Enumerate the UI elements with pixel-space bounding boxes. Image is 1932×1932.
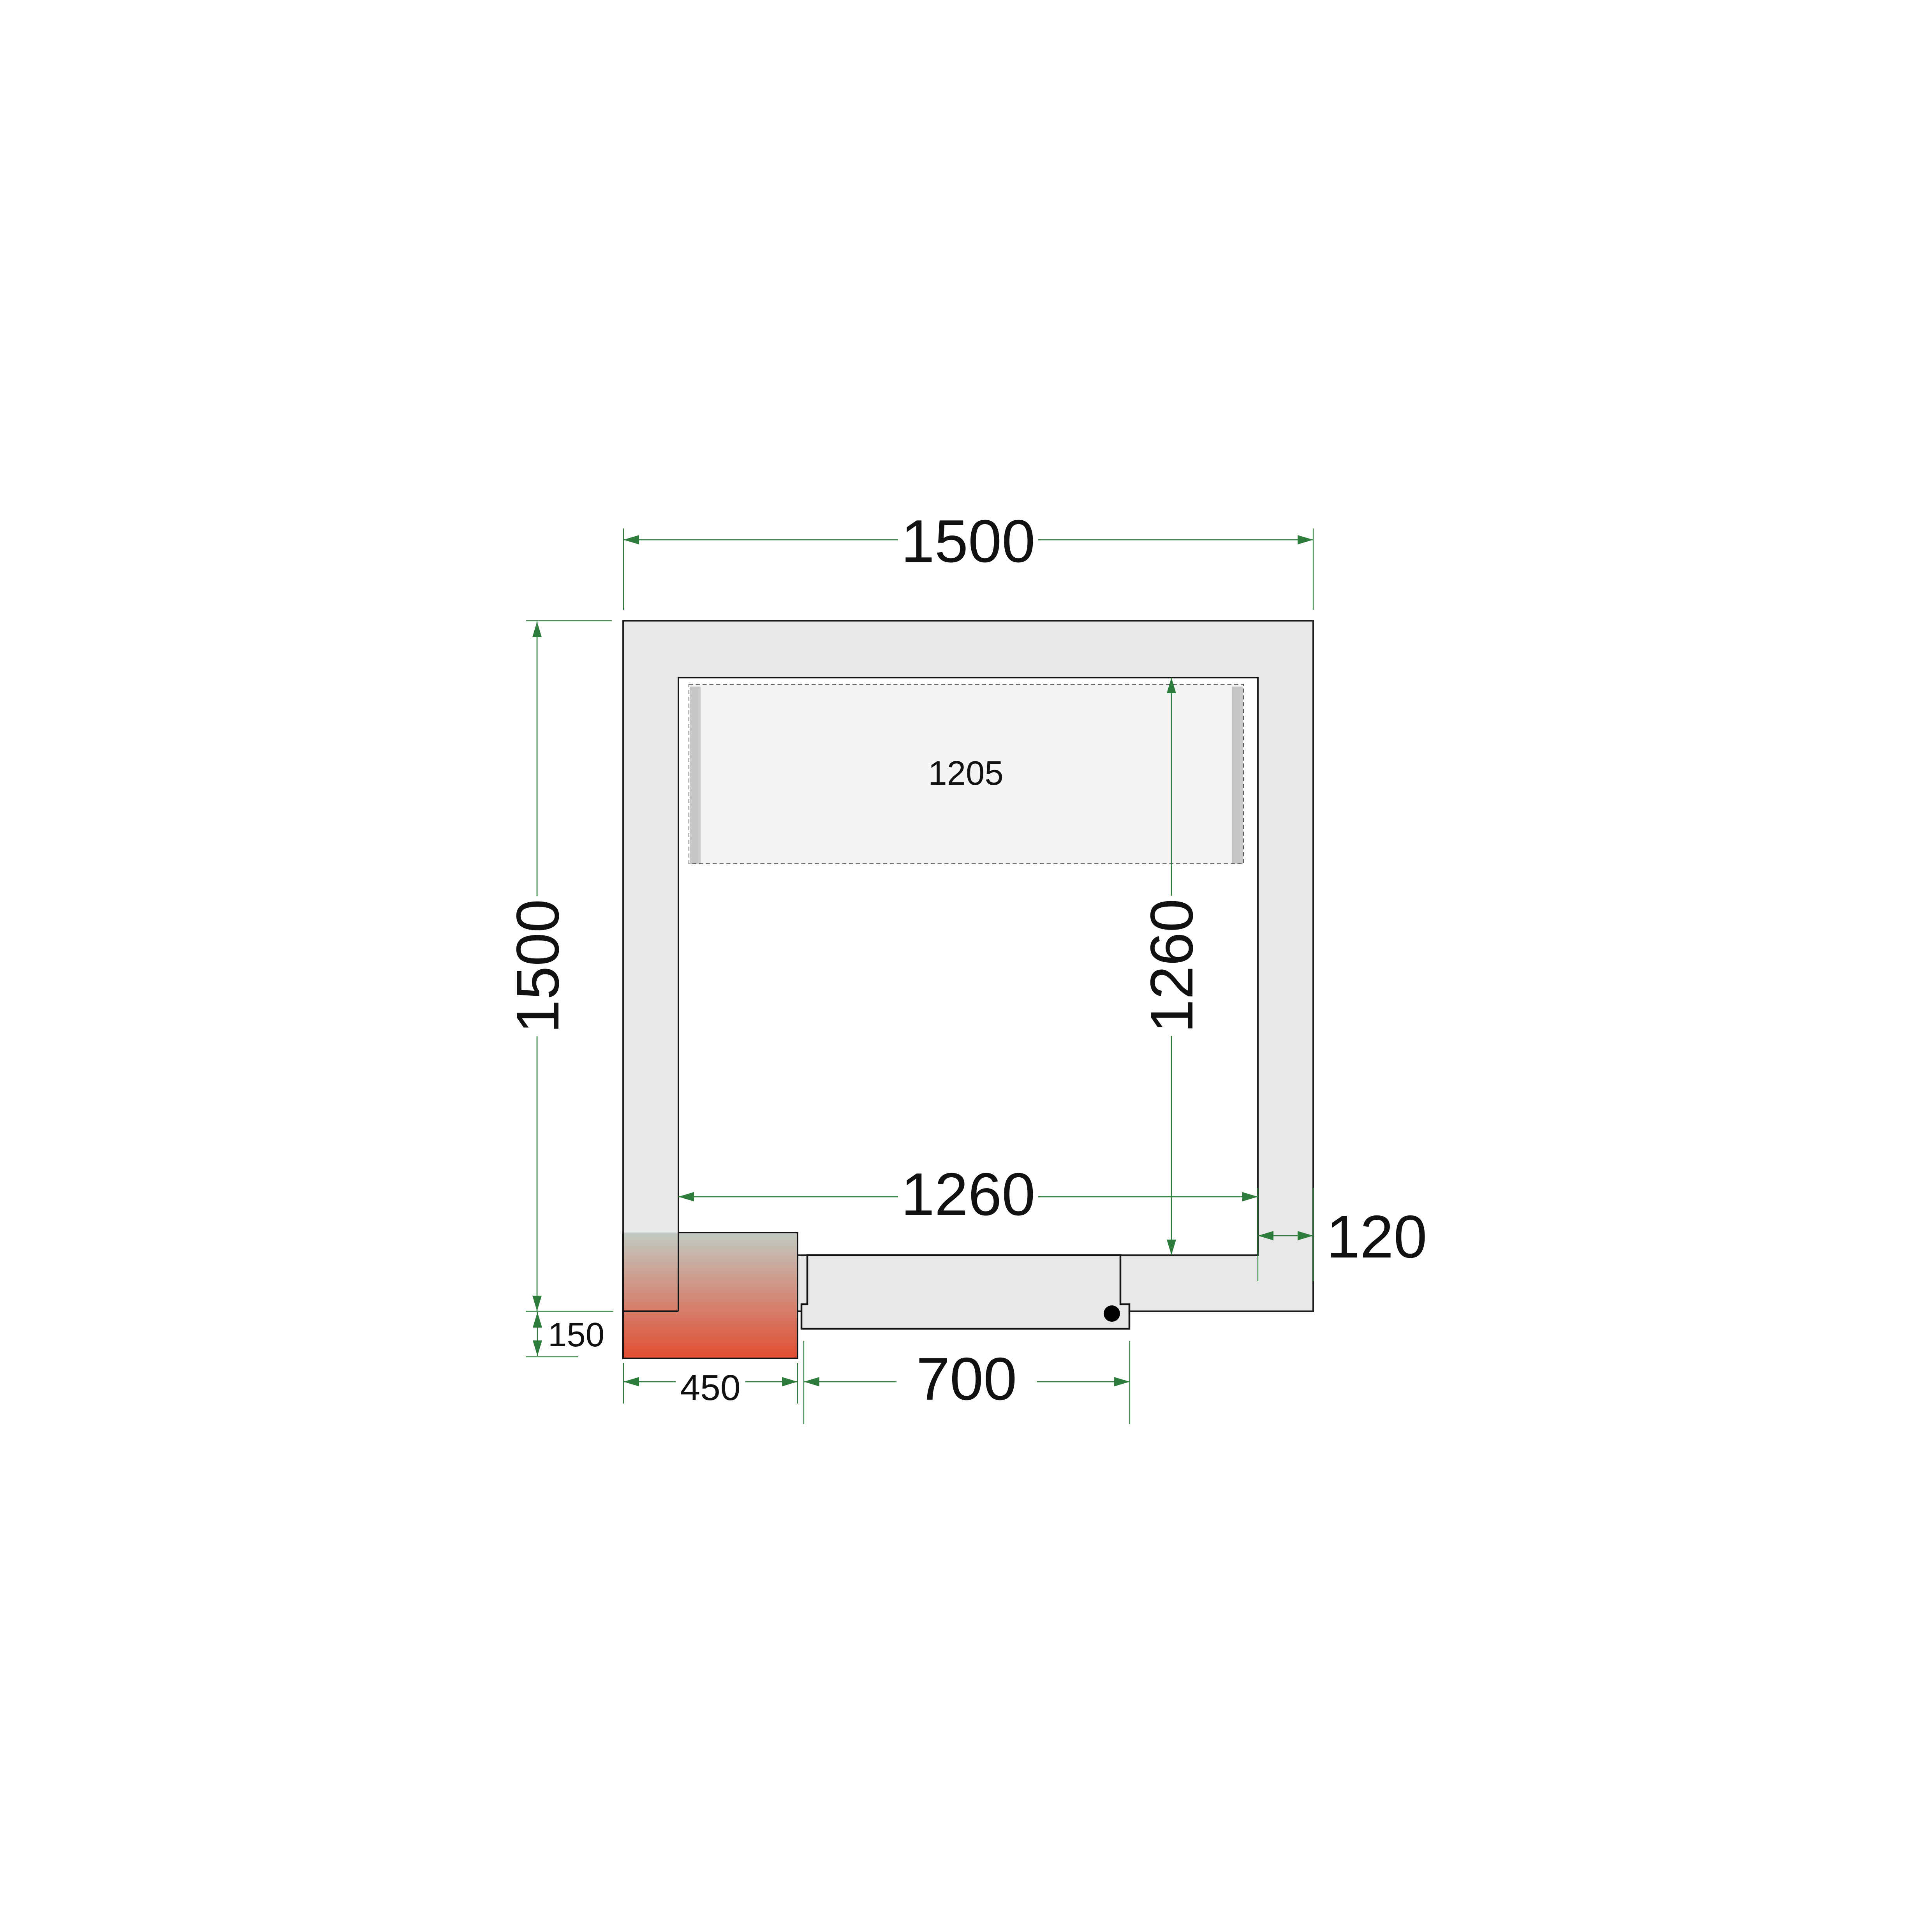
- svg-text:1260: 1260: [1138, 899, 1205, 1033]
- svg-text:1500: 1500: [504, 899, 571, 1034]
- svg-text:1500: 1500: [901, 507, 1036, 575]
- svg-text:1205: 1205: [928, 754, 1004, 792]
- svg-text:450: 450: [680, 1367, 740, 1408]
- svg-text:700: 700: [916, 1345, 1017, 1412]
- svg-text:150: 150: [548, 1316, 604, 1354]
- svg-text:1260: 1260: [901, 1161, 1036, 1228]
- svg-text:120: 120: [1326, 1203, 1427, 1270]
